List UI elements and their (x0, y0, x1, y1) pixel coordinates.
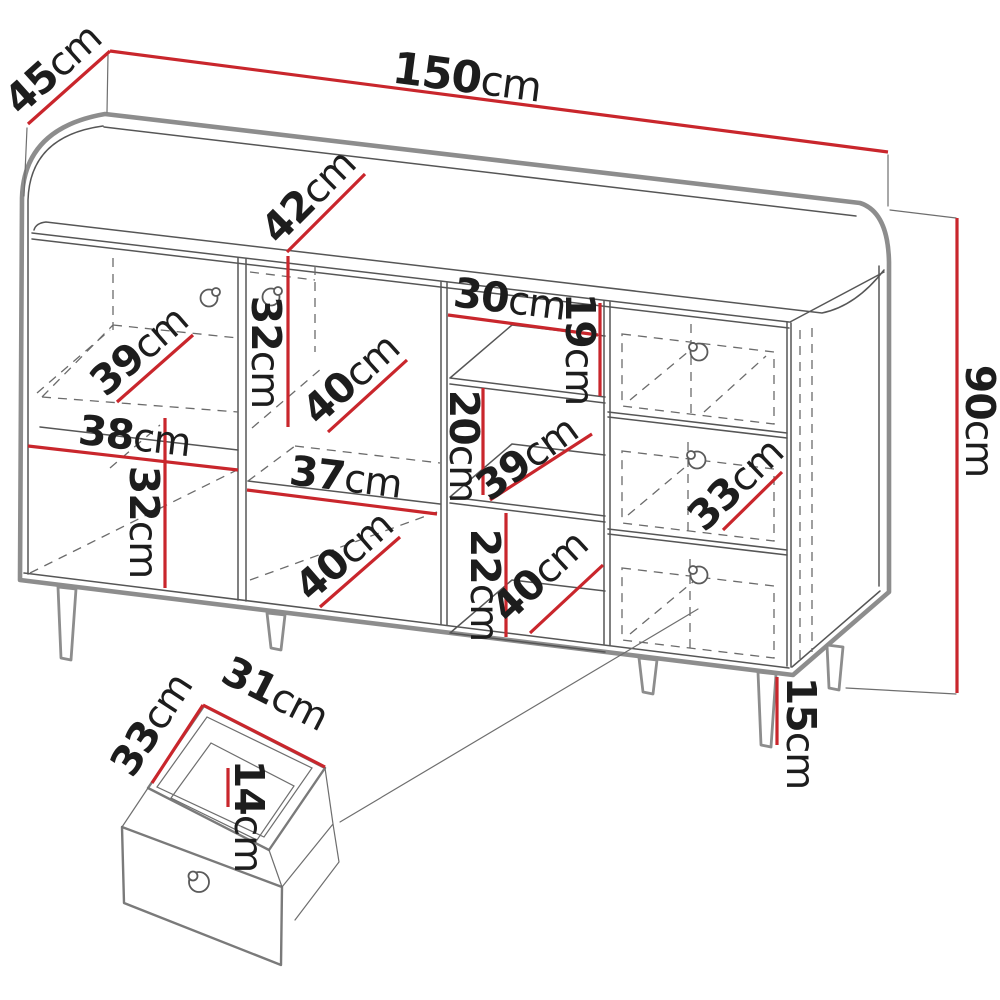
sideboard-dimension-diagram: 45cm 150cm 42cm 39cm 38cm 32cm 32cm 40cm… (0, 0, 1000, 1000)
dim-drawer-detail-height-14cm: 14cm (225, 760, 273, 873)
furniture-dimension-sheet: 45cm 150cm 42cm 39cm 38cm 32cm 32cm 40cm… (0, 0, 1000, 1000)
drawer-2-knob (687, 451, 706, 469)
dim-leg-height-15cm: 15cm (777, 677, 825, 790)
dim-middle-door-upper-height-32cm: 32cm (242, 296, 290, 409)
dim-left-door-lower-height-32cm: 32cm (120, 466, 168, 579)
dim-height-90cm: 90cm (956, 365, 1000, 478)
dim-niche-top-height-19cm: 19cm (556, 293, 604, 406)
drawer-3-knob (689, 566, 708, 584)
drawer-detail-knob (189, 872, 210, 893)
drawer-1-knob (689, 343, 708, 361)
